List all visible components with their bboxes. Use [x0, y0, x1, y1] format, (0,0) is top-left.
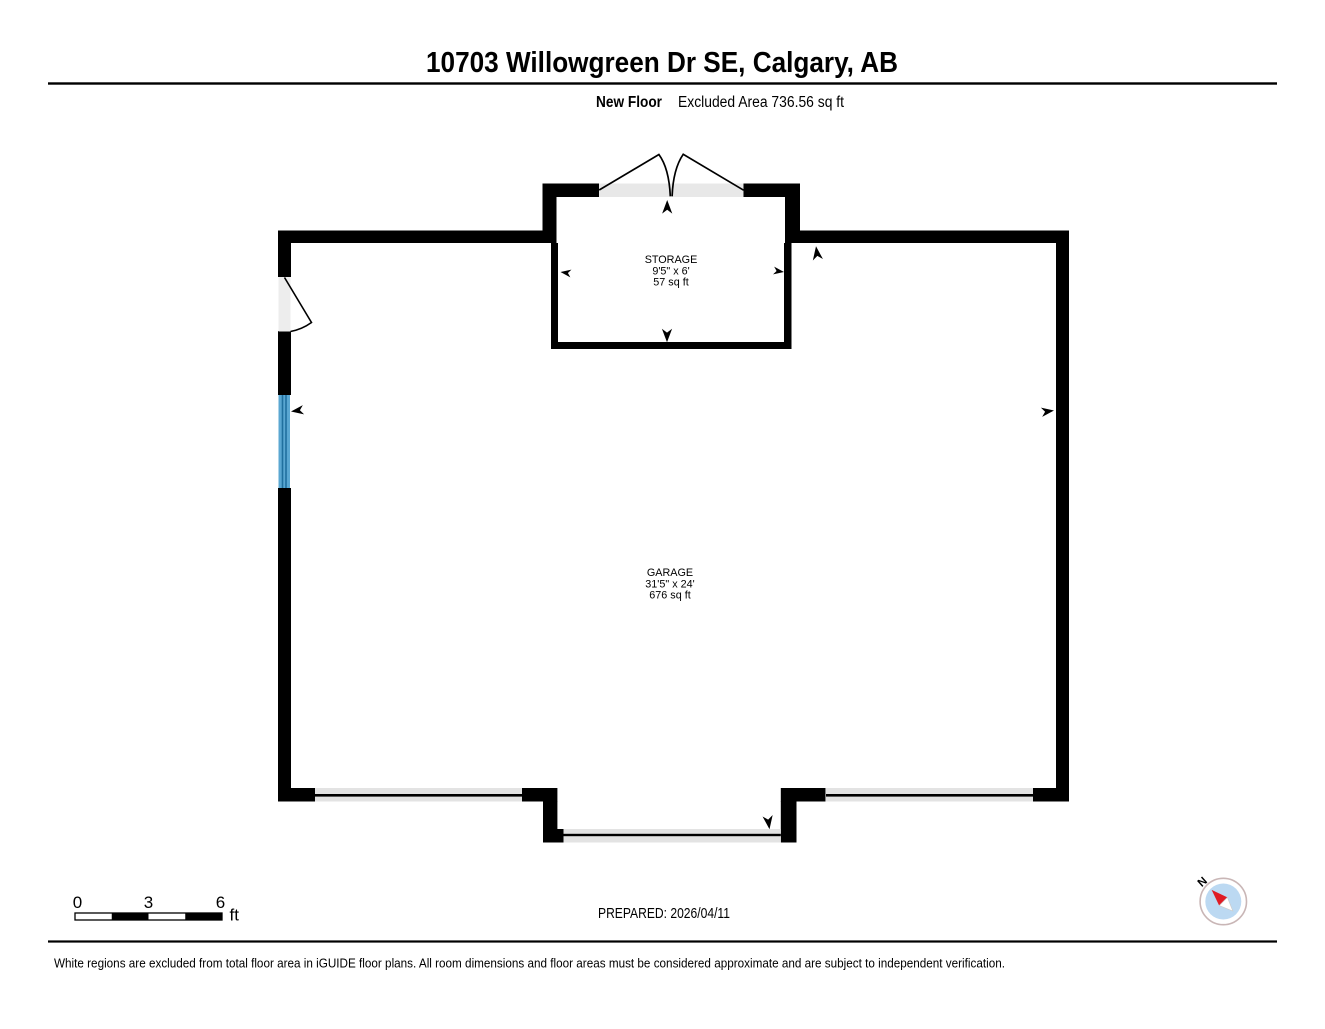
svg-text:57 sq ft: 57 sq ft: [653, 276, 688, 288]
svg-text:6: 6: [216, 893, 225, 912]
svg-text:ft: ft: [230, 906, 240, 925]
svg-text:676 sq ft: 676 sq ft: [649, 589, 690, 601]
svg-text:10703 Willowgreen Dr SE, Calga: 10703 Willowgreen Dr SE, Calgary, AB: [426, 47, 898, 79]
svg-text:New Floor: New Floor: [596, 94, 662, 111]
svg-text:GARAGE: GARAGE: [647, 567, 693, 579]
svg-text:White regions are excluded fro: White regions are excluded from total fl…: [54, 956, 1005, 971]
svg-text:PREPARED: 2026/04/11: PREPARED: 2026/04/11: [598, 905, 730, 922]
svg-text:0: 0: [73, 893, 82, 912]
svg-text:Excluded Area 736.56 sq ft: Excluded Area 736.56 sq ft: [678, 94, 845, 111]
svg-text:3: 3: [144, 893, 153, 912]
